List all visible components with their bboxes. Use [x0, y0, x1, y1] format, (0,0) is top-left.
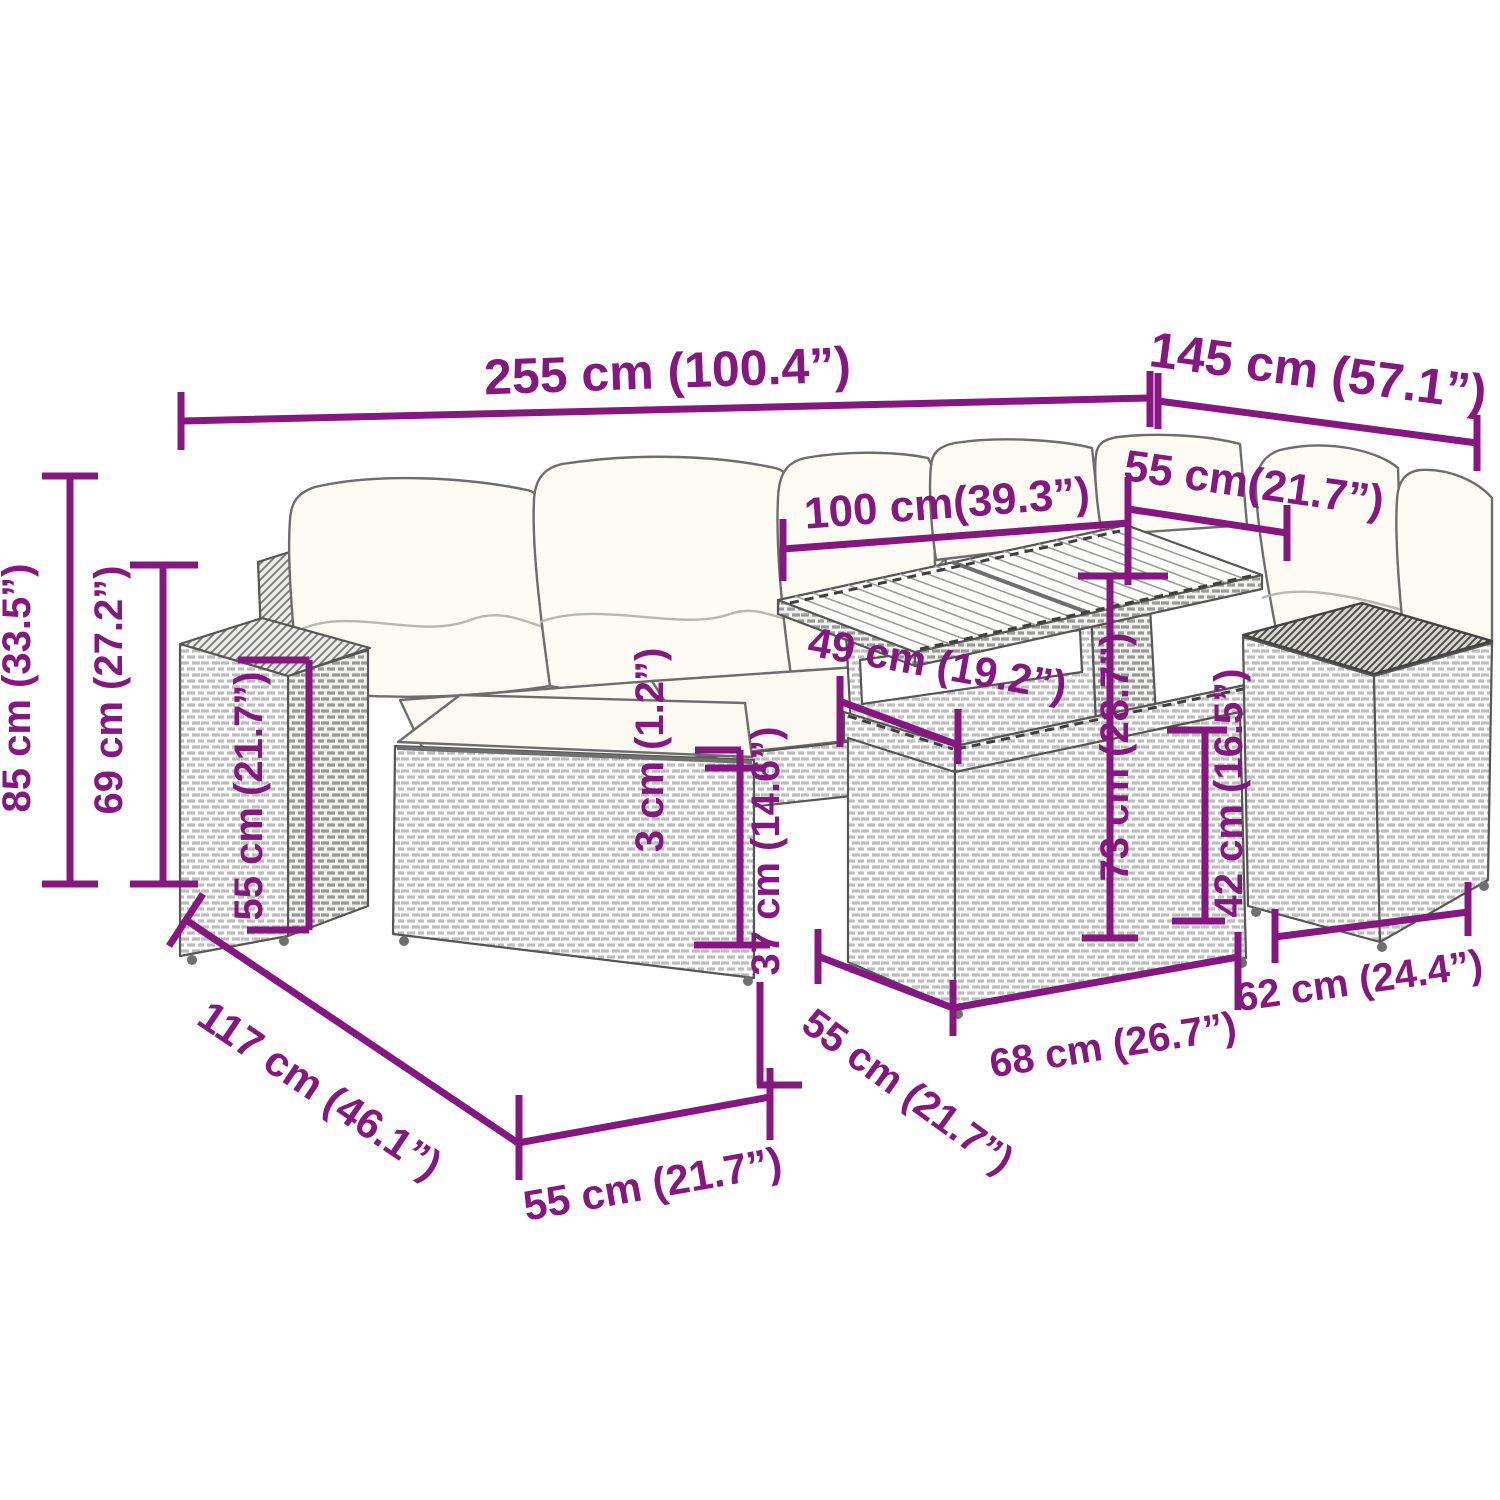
dim-armrest-height-label: 55 cm (21.7”) [227, 671, 271, 920]
dim-side-table-height-label: 42 cm (16.5”) [1207, 668, 1251, 917]
left-armrest [180, 618, 370, 965]
dim-table-height-label: 73 cm (28.7”) [1093, 632, 1137, 881]
dim-total-height: 85 cm (33.5”) [0, 476, 98, 884]
right-side-table [1243, 603, 1492, 952]
dim-backrest-height-label: 69 cm (27.2”) [87, 565, 131, 814]
dim-seat-height-label: 37 cm (14.6”) [744, 726, 788, 975]
dim-sofa-depth-label: 117 cm (46.1”) [190, 992, 450, 1189]
product-dimension-diagram: 255 cm (100.4”) 145 cm (57.1”) 100 cm(39… [0, 0, 1500, 1500]
dim-cushion-thickness-label: 3 cm (1.2”) [628, 648, 672, 853]
dim-seat-width-label: 55 cm (21.7”) [520, 1138, 786, 1230]
dim-total-width: 255 cm (100.4”) [181, 337, 1150, 450]
dim-side-table-width-label: 62 cm (24.4”) [1233, 942, 1486, 1020]
dim-seat-width: 55 cm (21.7”) [518, 1068, 785, 1230]
dim-module-width-label: 68 cm (26.7”) [987, 1004, 1240, 1086]
dim-total-width-label: 255 cm (100.4”) [483, 337, 852, 406]
diagram-page: 255 cm (100.4”) 145 cm (57.1”) 100 cm(39… [0, 0, 1500, 1500]
dim-module-depth-label: 55 cm (21.7”) [794, 1000, 1021, 1182]
dim-total-height-label: 85 cm (33.5”) [0, 563, 39, 812]
